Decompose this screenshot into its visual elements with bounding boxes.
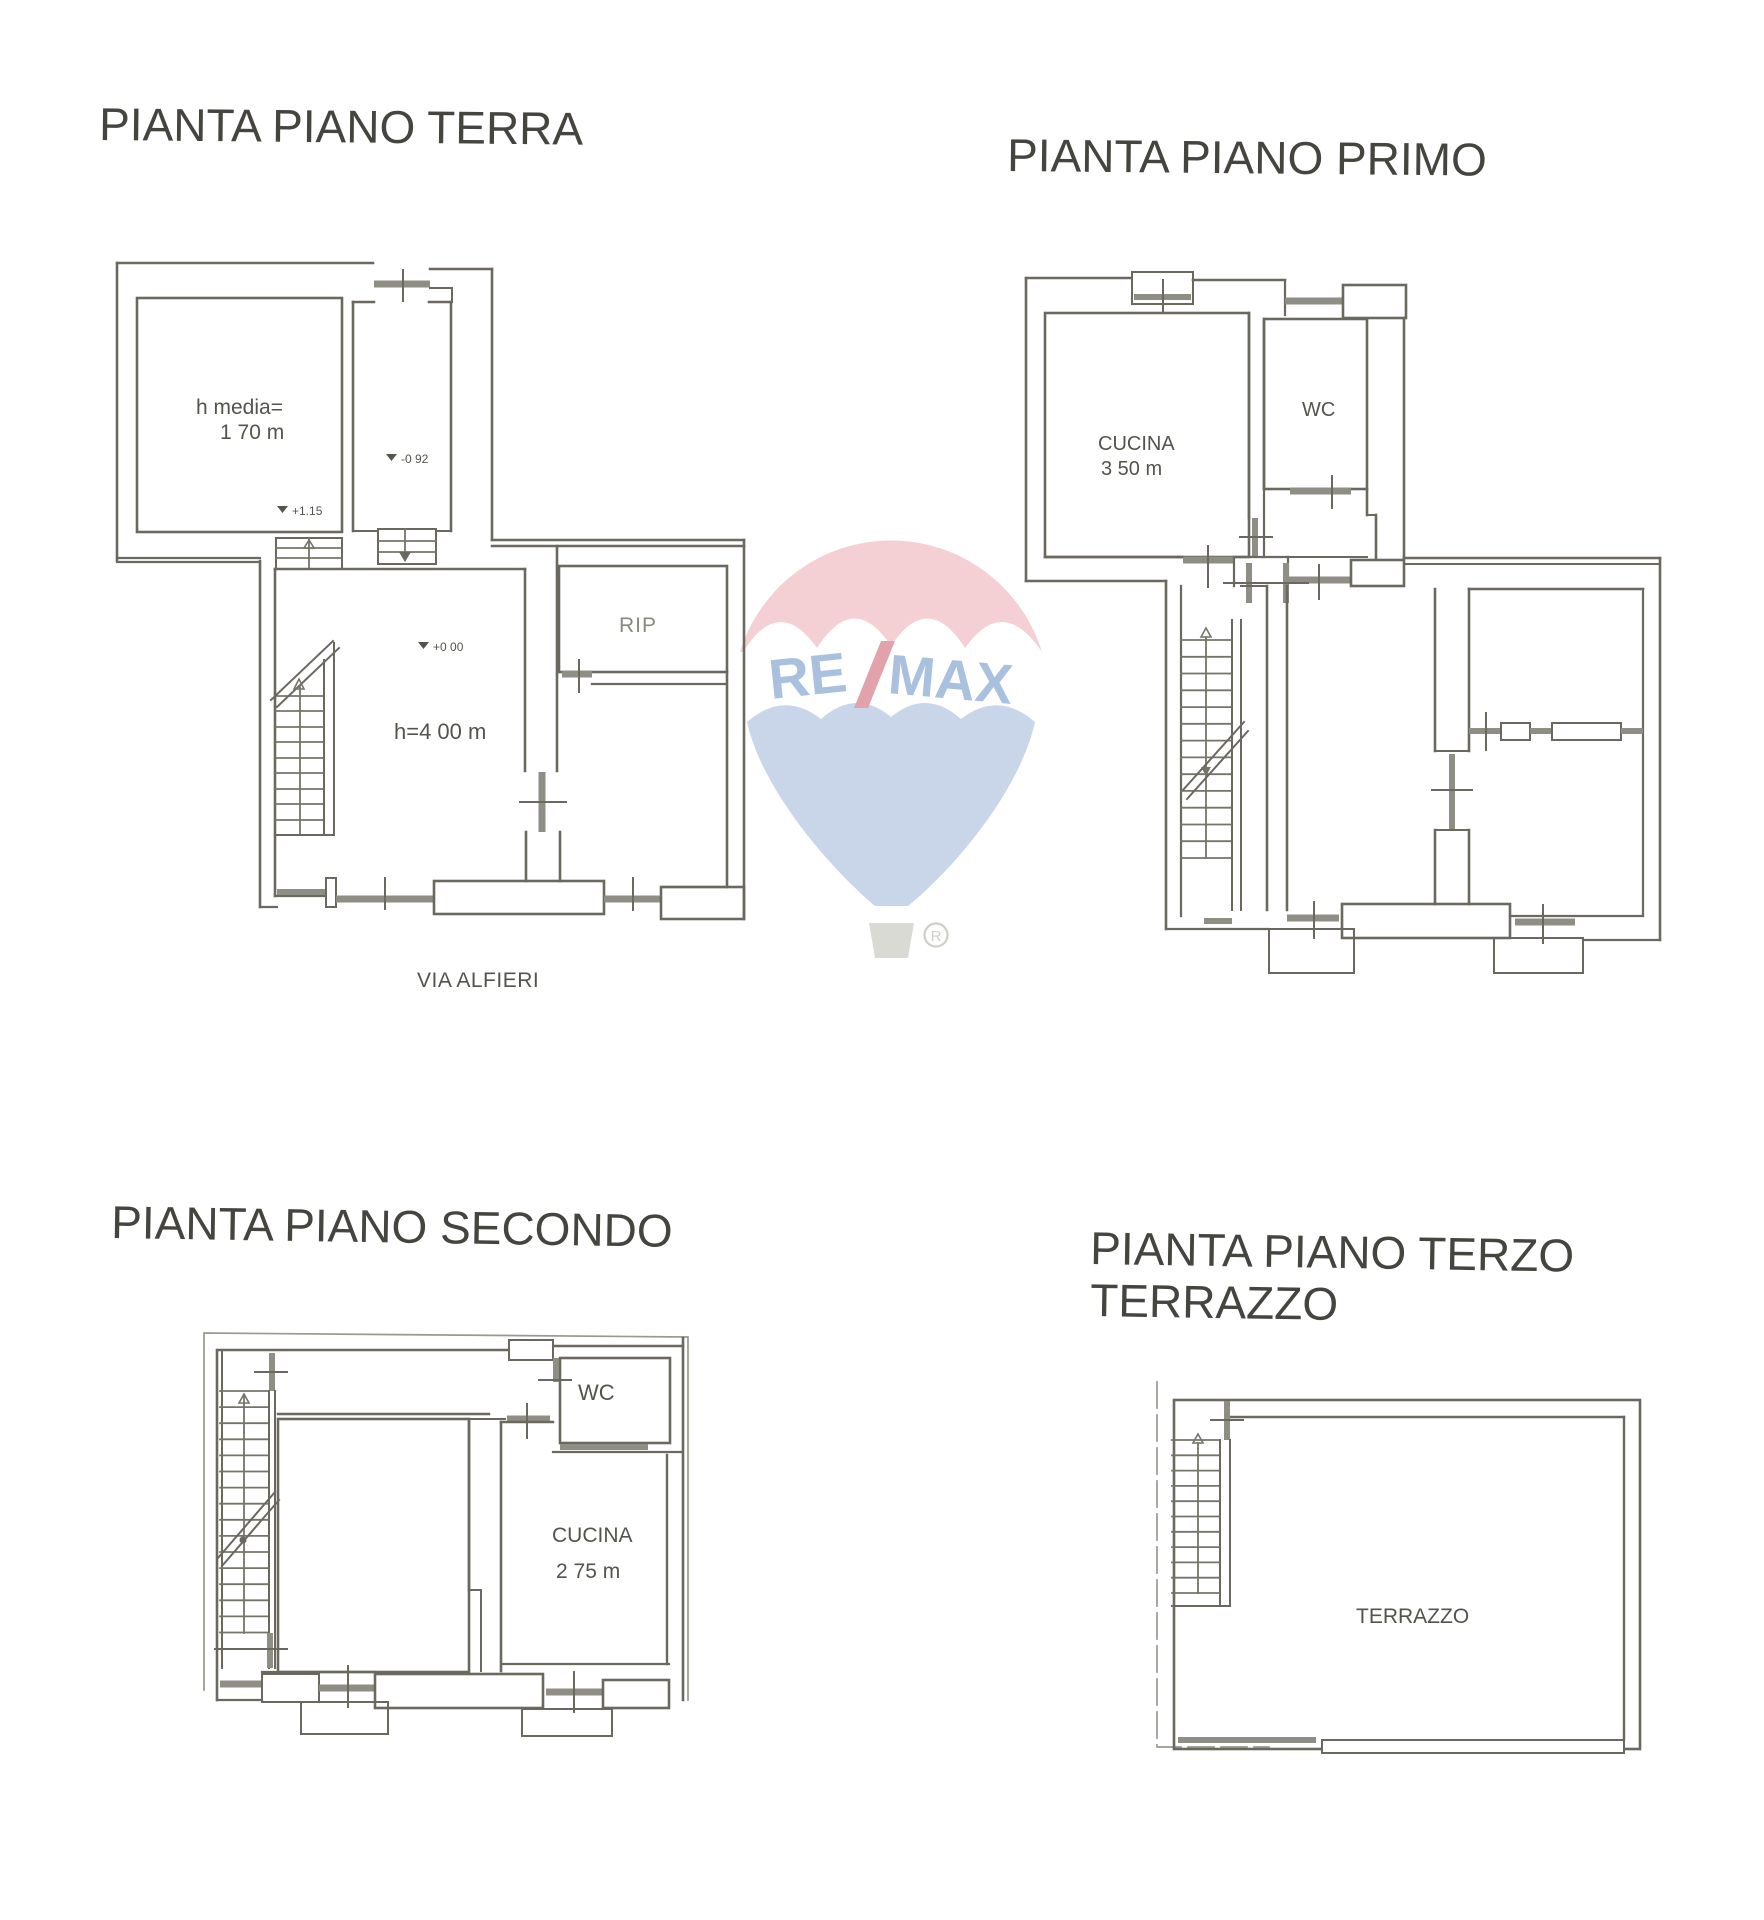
svg-text:1 70 m: 1 70 m: [220, 421, 284, 444]
svg-text:WC: WC: [1302, 399, 1335, 421]
svg-text:PIANTA PIANO TERZO: PIANTA PIANO TERZO: [1090, 1222, 1575, 1282]
svg-text:RE: RE: [766, 640, 850, 711]
svg-text:CUCINA: CUCINA: [552, 1524, 633, 1547]
svg-text:+1.15: +1.15: [292, 504, 323, 518]
svg-text:CUCINA: CUCINA: [1098, 433, 1175, 455]
svg-text:h=4 00 m: h=4 00 m: [394, 719, 486, 744]
svg-text:PIANTA PIANO TERRA: PIANTA PIANO TERRA: [99, 98, 584, 155]
svg-text:2 75 m: 2 75 m: [556, 1560, 620, 1583]
svg-text:PIANTA PIANO SECONDO: PIANTA PIANO SECONDO: [111, 1196, 673, 1257]
svg-text:TERRAZZO: TERRAZZO: [1090, 1274, 1339, 1330]
svg-text:VIA ALFIERI: VIA ALFIERI: [417, 969, 539, 992]
svg-text:-0 92: -0 92: [401, 452, 429, 466]
svg-text:MAX: MAX: [886, 642, 1015, 716]
svg-text:RIP: RIP: [619, 614, 657, 637]
svg-text:3 50 m: 3 50 m: [1101, 458, 1162, 480]
svg-text:PIANTA PIANO PRIMO: PIANTA PIANO PRIMO: [1007, 129, 1487, 186]
svg-text:WC: WC: [578, 1380, 615, 1405]
svg-text:+0 00: +0 00: [433, 640, 464, 654]
svg-text:h media=: h media=: [196, 396, 283, 419]
svg-text:TERRAZZO: TERRAZZO: [1356, 1605, 1469, 1628]
svg-text:R: R: [931, 928, 942, 945]
